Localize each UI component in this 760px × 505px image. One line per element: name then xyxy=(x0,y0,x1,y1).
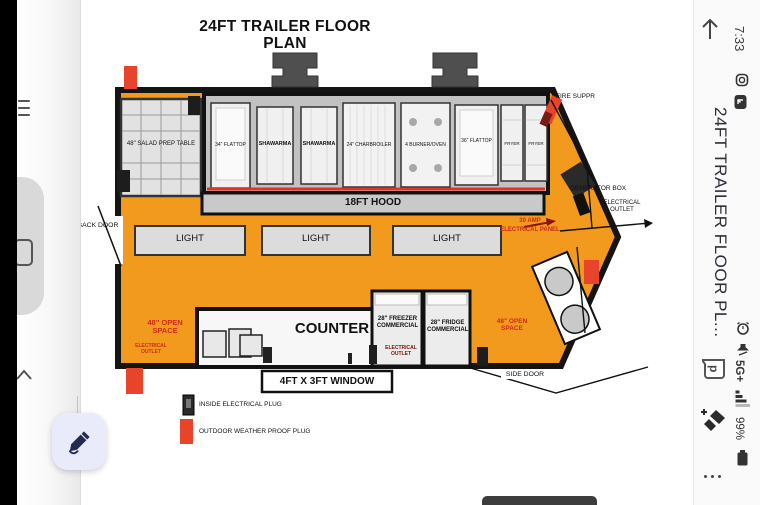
annotate-pen-button[interactable] xyxy=(52,413,106,470)
plug-slot xyxy=(186,399,191,408)
electrical-outlet-label-left: ELECTRICAL OUTLET xyxy=(133,344,169,355)
open-space-label-left: 48" OPEN SPACE xyxy=(134,319,196,336)
light-label-2: LIGHT xyxy=(262,234,370,245)
signal-bars-icon xyxy=(735,389,750,411)
screen-edge-strip xyxy=(0,0,17,505)
freezer-label: 28" FREEZER COMMERCIAL xyxy=(375,316,420,329)
light-label-3: LIGHT xyxy=(393,234,501,245)
equipment-label-flattop-36: 36" FLATTOP xyxy=(454,139,499,145)
battery-percent: 99% xyxy=(733,417,745,440)
pen-button-stem xyxy=(77,396,78,413)
amp-panel-label-line1: 30 AMP xyxy=(500,218,560,225)
reply-notification-icon xyxy=(734,94,747,110)
page-title: 24FT TRAILER FLOOR PLAN xyxy=(185,18,385,53)
more-options-icon[interactable] xyxy=(704,475,721,478)
status-time: 7:33 xyxy=(732,26,747,51)
equipment-label-charbroiler: 24" CHARBROILER xyxy=(341,143,397,149)
document-title: 24FT TRAILER FLOOR PL... xyxy=(710,107,730,338)
outdoor-plug-icon xyxy=(180,419,193,444)
vibrate-icon xyxy=(736,341,750,357)
generator-box-label: GENERATOR BOX xyxy=(570,185,640,192)
chevron-up-icon[interactable] xyxy=(15,368,33,382)
status-toolbar: 7:33 24FT TRAILER FLOOR PL... 5G+ 99% xyxy=(693,0,760,505)
fire-suppression-label: FIRE SUPPR xyxy=(556,93,606,100)
legend-outdoor-plug-label: OUTDOOR WEATHER PROOF PLUG xyxy=(199,428,349,435)
legend-inside-plug-label: INSIDE ELECTRICAL PLUG xyxy=(199,401,319,408)
alarm-icon xyxy=(736,321,750,335)
window-label: 4FT X 3FT WINDOW xyxy=(262,376,392,387)
floor-plan-drawing xyxy=(0,0,760,505)
equipment-label-fryer-2: FRYER xyxy=(524,141,548,146)
back-door-label: BACK DOOR xyxy=(74,222,122,230)
app-shortcut-p-icon[interactable]: p xyxy=(702,355,726,382)
equipment-label-burner-oven: 4 BURNER/OVEN xyxy=(400,143,451,149)
svg-text:p: p xyxy=(707,365,721,372)
equipment-label-fryer-1: FRYER xyxy=(500,141,524,146)
battery-icon xyxy=(736,449,749,467)
equipment-label-shawarma-2: SHAWARMA xyxy=(299,141,339,147)
roof-vent-icon xyxy=(272,53,318,87)
hood-label: 18FT HOOD xyxy=(202,197,544,208)
back-arrow-icon[interactable] xyxy=(699,16,721,42)
network-type: 5G+ xyxy=(733,360,745,382)
side-door-label: SIDE DOOR xyxy=(501,371,549,379)
app-shortcut-plus-icon[interactable] xyxy=(701,406,727,434)
equipment-label-salad-table: 48" SALAD PREP TABLE xyxy=(124,141,198,148)
fridge-label: 28" FRIDGE COMMERCIAL xyxy=(427,320,468,333)
electrical-outlet-label-mid: ELECTRICAL OUTLET xyxy=(383,346,419,357)
counter-label: COUNTER xyxy=(293,321,371,338)
signature-pen-icon xyxy=(62,425,96,459)
counter-box xyxy=(197,309,373,367)
arrowhead xyxy=(644,219,653,228)
open-space-label-right: 48" OPEN SPACE xyxy=(485,318,539,333)
amp-panel-label-line2: ELECTRICAL PANEL xyxy=(496,227,564,234)
bottom-sheet-handle[interactable] xyxy=(482,496,597,505)
equipment-label-shawarma-1: SHAWARMA xyxy=(255,141,295,147)
instagram-notification-icon xyxy=(735,73,749,87)
roof-vent-icon xyxy=(432,53,478,87)
electrical-outlet-label-right: ELECTRICAL OUTLET xyxy=(596,200,648,213)
equipment-label-flattop-34: 34" FLATTOP xyxy=(211,143,250,149)
light-label-1: LIGHT xyxy=(135,234,245,245)
